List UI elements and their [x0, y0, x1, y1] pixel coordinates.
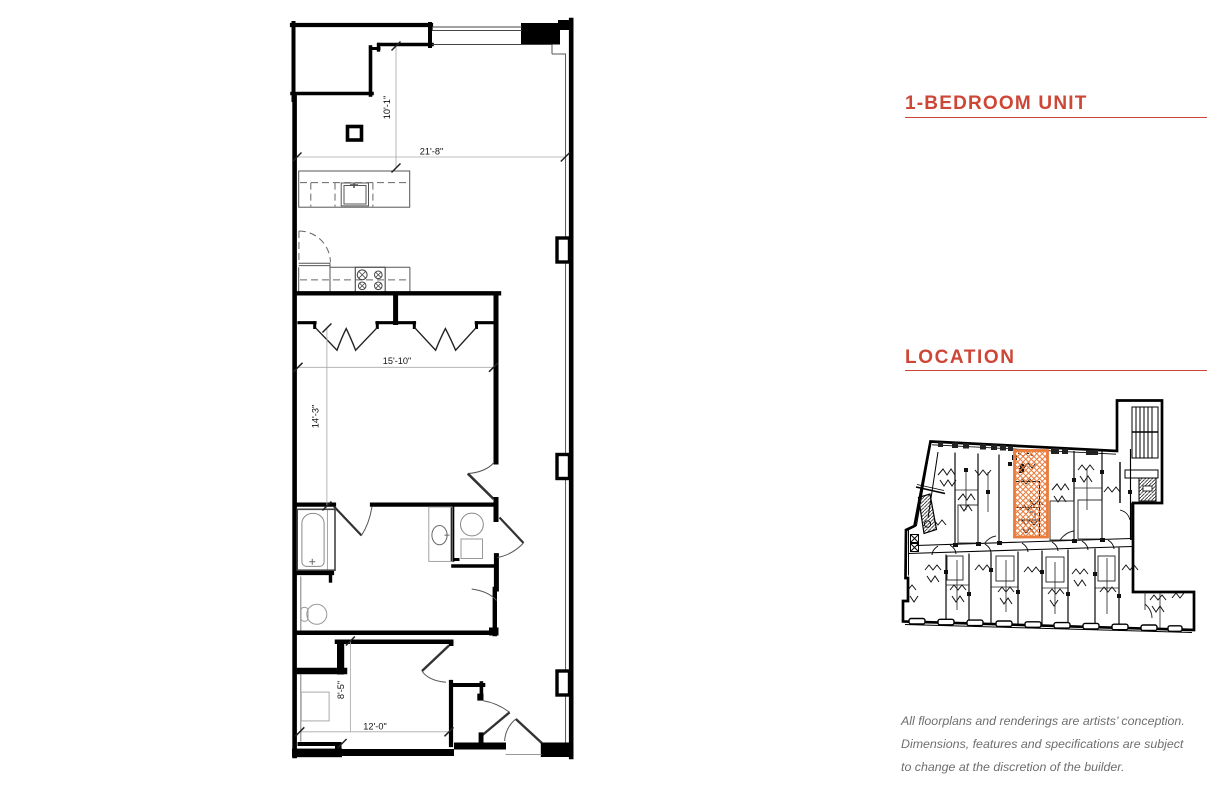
svg-text:14'-3": 14'-3": [311, 405, 321, 428]
svg-text:10'-1": 10'-1": [382, 96, 392, 119]
svg-text:21'-8": 21'-8": [420, 147, 443, 157]
svg-text:15'-10": 15'-10": [383, 356, 412, 366]
svg-text:12'-0": 12'-0": [363, 722, 386, 732]
svg-text:8'-5": 8'-5": [336, 681, 346, 699]
